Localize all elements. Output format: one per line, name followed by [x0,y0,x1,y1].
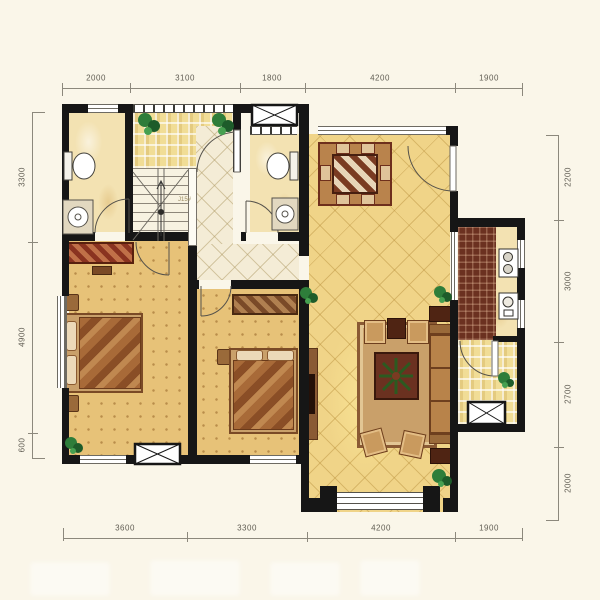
dim-tick [28,242,38,243]
dim-label: 3300 [237,524,257,533]
dim-tick [546,135,559,136]
dim-tick [455,532,456,542]
dim-tick [307,532,308,542]
dim-label: 4200 [370,74,390,83]
floor-plan: J15# 2000 3100 1800 4200 1900 3600 3300 … [0,0,600,600]
dim-line-top [62,88,523,89]
plan-overlay [0,0,600,600]
toilet-icon [64,152,95,180]
dim-label: 2000 [564,473,573,493]
dim-tick [240,83,241,93]
toilet-icon [267,152,298,180]
watermark [150,560,240,596]
dim-line-left [32,112,33,458]
dim-tick [32,458,45,459]
dim-label: 1900 [479,74,499,83]
dim-tick [305,83,306,93]
stove-icon [499,249,518,277]
dim-tick [62,83,63,96]
dim-label: 3000 [564,271,573,291]
dim-label: 3600 [115,524,135,533]
dim-label: 3300 [18,167,27,187]
dim-tick [63,528,64,541]
dim-label: 1800 [262,74,282,83]
dim-tick [554,220,564,221]
dim-tick [522,528,523,541]
staircase-detail [133,168,188,241]
dim-tick [187,532,188,542]
dim-tick [130,83,131,93]
dim-label: 4200 [371,524,391,533]
dim-tick [554,342,564,343]
dim-label: 600 [18,438,27,453]
sink-icon [272,198,298,230]
dim-tick [28,433,38,434]
dim-label: 2200 [564,167,573,187]
watermark [270,562,340,596]
stair-tag: J15# [178,197,191,203]
dim-label: 4900 [18,327,27,347]
watermark [30,562,110,596]
table-plant-motif [379,358,413,394]
dim-line-bottom [63,538,523,539]
dim-tick [546,520,559,521]
sink-icon [63,200,93,234]
dim-tick [455,83,456,93]
dim-label: 2000 [86,74,106,83]
dim-label: 3100 [175,74,195,83]
watermark [360,560,420,596]
dim-tick [522,83,523,96]
dim-line-right [558,135,559,520]
dim-tick [32,112,45,113]
dim-tick [554,447,564,448]
dim-label: 1900 [479,524,499,533]
kitchen-sink-icon [499,293,518,319]
dim-label: 2700 [564,384,573,404]
